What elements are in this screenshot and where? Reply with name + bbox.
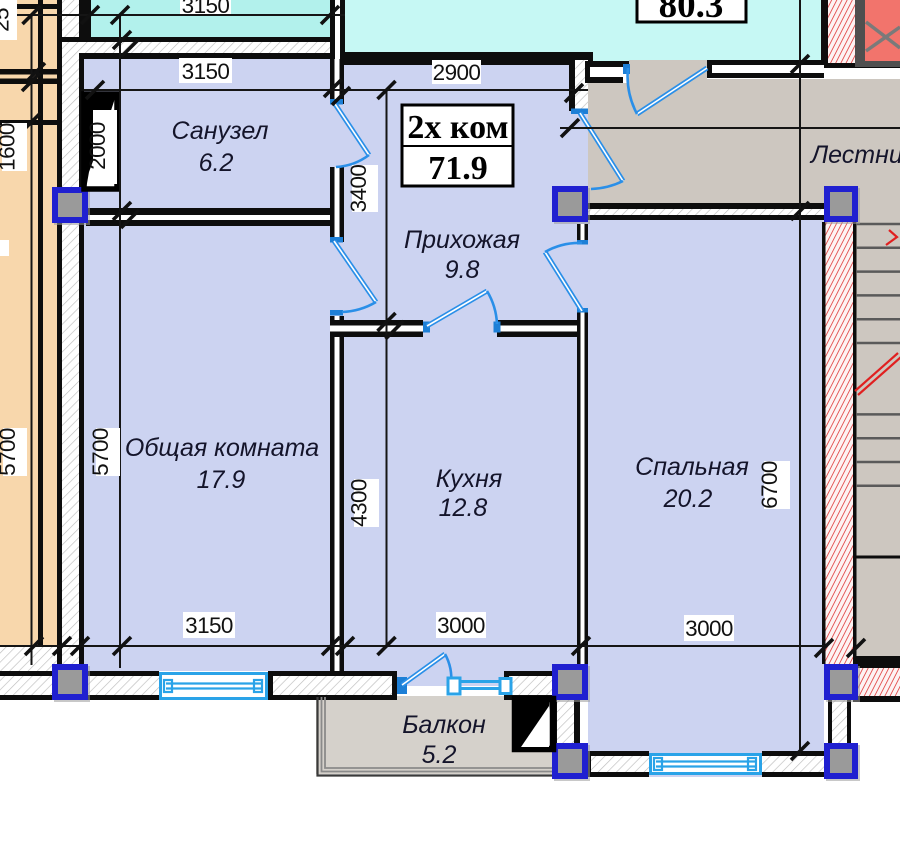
svg-text:5.2: 5.2 bbox=[422, 741, 457, 769]
svg-text:2х ком: 2х ком bbox=[407, 109, 508, 146]
svg-text:6.2: 6.2 bbox=[199, 149, 234, 177]
svg-text:12.8: 12.8 bbox=[439, 494, 488, 522]
svg-text:Лестничная: Лестничная bbox=[809, 141, 900, 169]
svg-text:1600: 1600 bbox=[0, 123, 20, 171]
svg-text:Спальная: Спальная bbox=[635, 453, 749, 481]
svg-text:5700: 5700 bbox=[0, 428, 20, 476]
svg-text:80.3: 80.3 bbox=[659, 0, 724, 26]
svg-text:6700: 6700 bbox=[757, 461, 782, 509]
svg-text:9.8: 9.8 bbox=[445, 256, 480, 284]
svg-text:3150: 3150 bbox=[185, 613, 233, 638]
svg-text:17.9: 17.9 bbox=[197, 466, 246, 494]
svg-text:Санузел: Санузел bbox=[171, 117, 268, 145]
svg-text:25: 25 bbox=[0, 8, 14, 32]
svg-text:Прихожая: Прихожая bbox=[404, 226, 520, 254]
svg-text:Кухня: Кухня bbox=[436, 465, 503, 493]
svg-text:20.2: 20.2 bbox=[663, 485, 713, 513]
svg-text:4300: 4300 bbox=[347, 479, 372, 527]
svg-text:3150: 3150 bbox=[182, 59, 230, 84]
svg-text:Балкон: Балкон bbox=[402, 711, 486, 739]
svg-text:3000: 3000 bbox=[437, 613, 485, 638]
svg-text:3400: 3400 bbox=[346, 165, 371, 213]
svg-text:2000: 2000 bbox=[85, 122, 110, 170]
svg-text:5700: 5700 bbox=[88, 428, 113, 476]
svg-text:71.9: 71.9 bbox=[428, 150, 488, 187]
svg-text:3000: 3000 bbox=[685, 616, 733, 641]
svg-text:3150: 3150 bbox=[182, 0, 230, 18]
svg-text:Общая комната: Общая комната bbox=[125, 434, 319, 462]
svg-text:2900: 2900 bbox=[433, 60, 481, 85]
